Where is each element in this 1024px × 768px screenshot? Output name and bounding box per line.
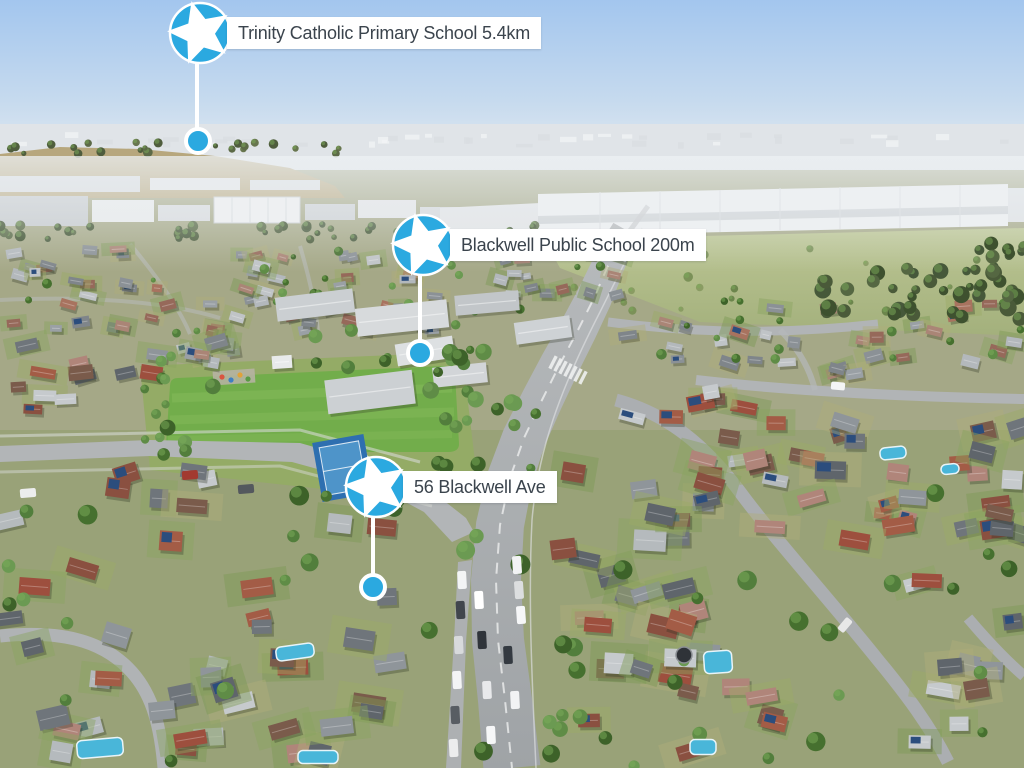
swimming-pool (703, 650, 732, 674)
swimming-pool (298, 751, 338, 764)
car (477, 631, 487, 649)
swimming-pool (879, 446, 906, 461)
aerial-suburb-scene (0, 0, 1024, 768)
star-pin-icon (342, 453, 410, 521)
car (454, 636, 464, 654)
annotated-aerial-photo: Trinity Catholic Primary School 5.4km Bl… (0, 0, 1024, 768)
swimming-pool (941, 463, 960, 475)
car (452, 671, 462, 689)
car (474, 591, 484, 609)
pin-label: 56 Blackwell Ave (403, 471, 557, 503)
swimming-pool (76, 737, 123, 759)
car (449, 739, 459, 757)
car (503, 646, 513, 664)
car (238, 484, 255, 494)
pin-label: Trinity Catholic Primary School 5.4km (227, 17, 541, 49)
pin-location-dot (359, 573, 387, 601)
car (182, 470, 199, 480)
pin-location-dot (184, 127, 212, 155)
pin-pointer-line (195, 60, 199, 130)
pin-label: Blackwell Public School 200m (450, 229, 706, 261)
trampoline (676, 647, 692, 663)
pin-pointer-line (371, 514, 375, 576)
car (450, 706, 460, 724)
swimming-pool (690, 740, 716, 755)
pin-location-dot (406, 339, 434, 367)
car (456, 601, 466, 619)
star-pin-icon (166, 0, 234, 67)
car (486, 726, 496, 744)
car (514, 581, 524, 600)
pin-pointer-line (418, 272, 422, 342)
car (831, 381, 846, 390)
car (457, 571, 467, 589)
car (482, 681, 492, 699)
car (510, 691, 520, 709)
star-pin-icon (389, 211, 457, 279)
car (512, 556, 522, 575)
car (516, 606, 526, 625)
car (20, 488, 37, 498)
